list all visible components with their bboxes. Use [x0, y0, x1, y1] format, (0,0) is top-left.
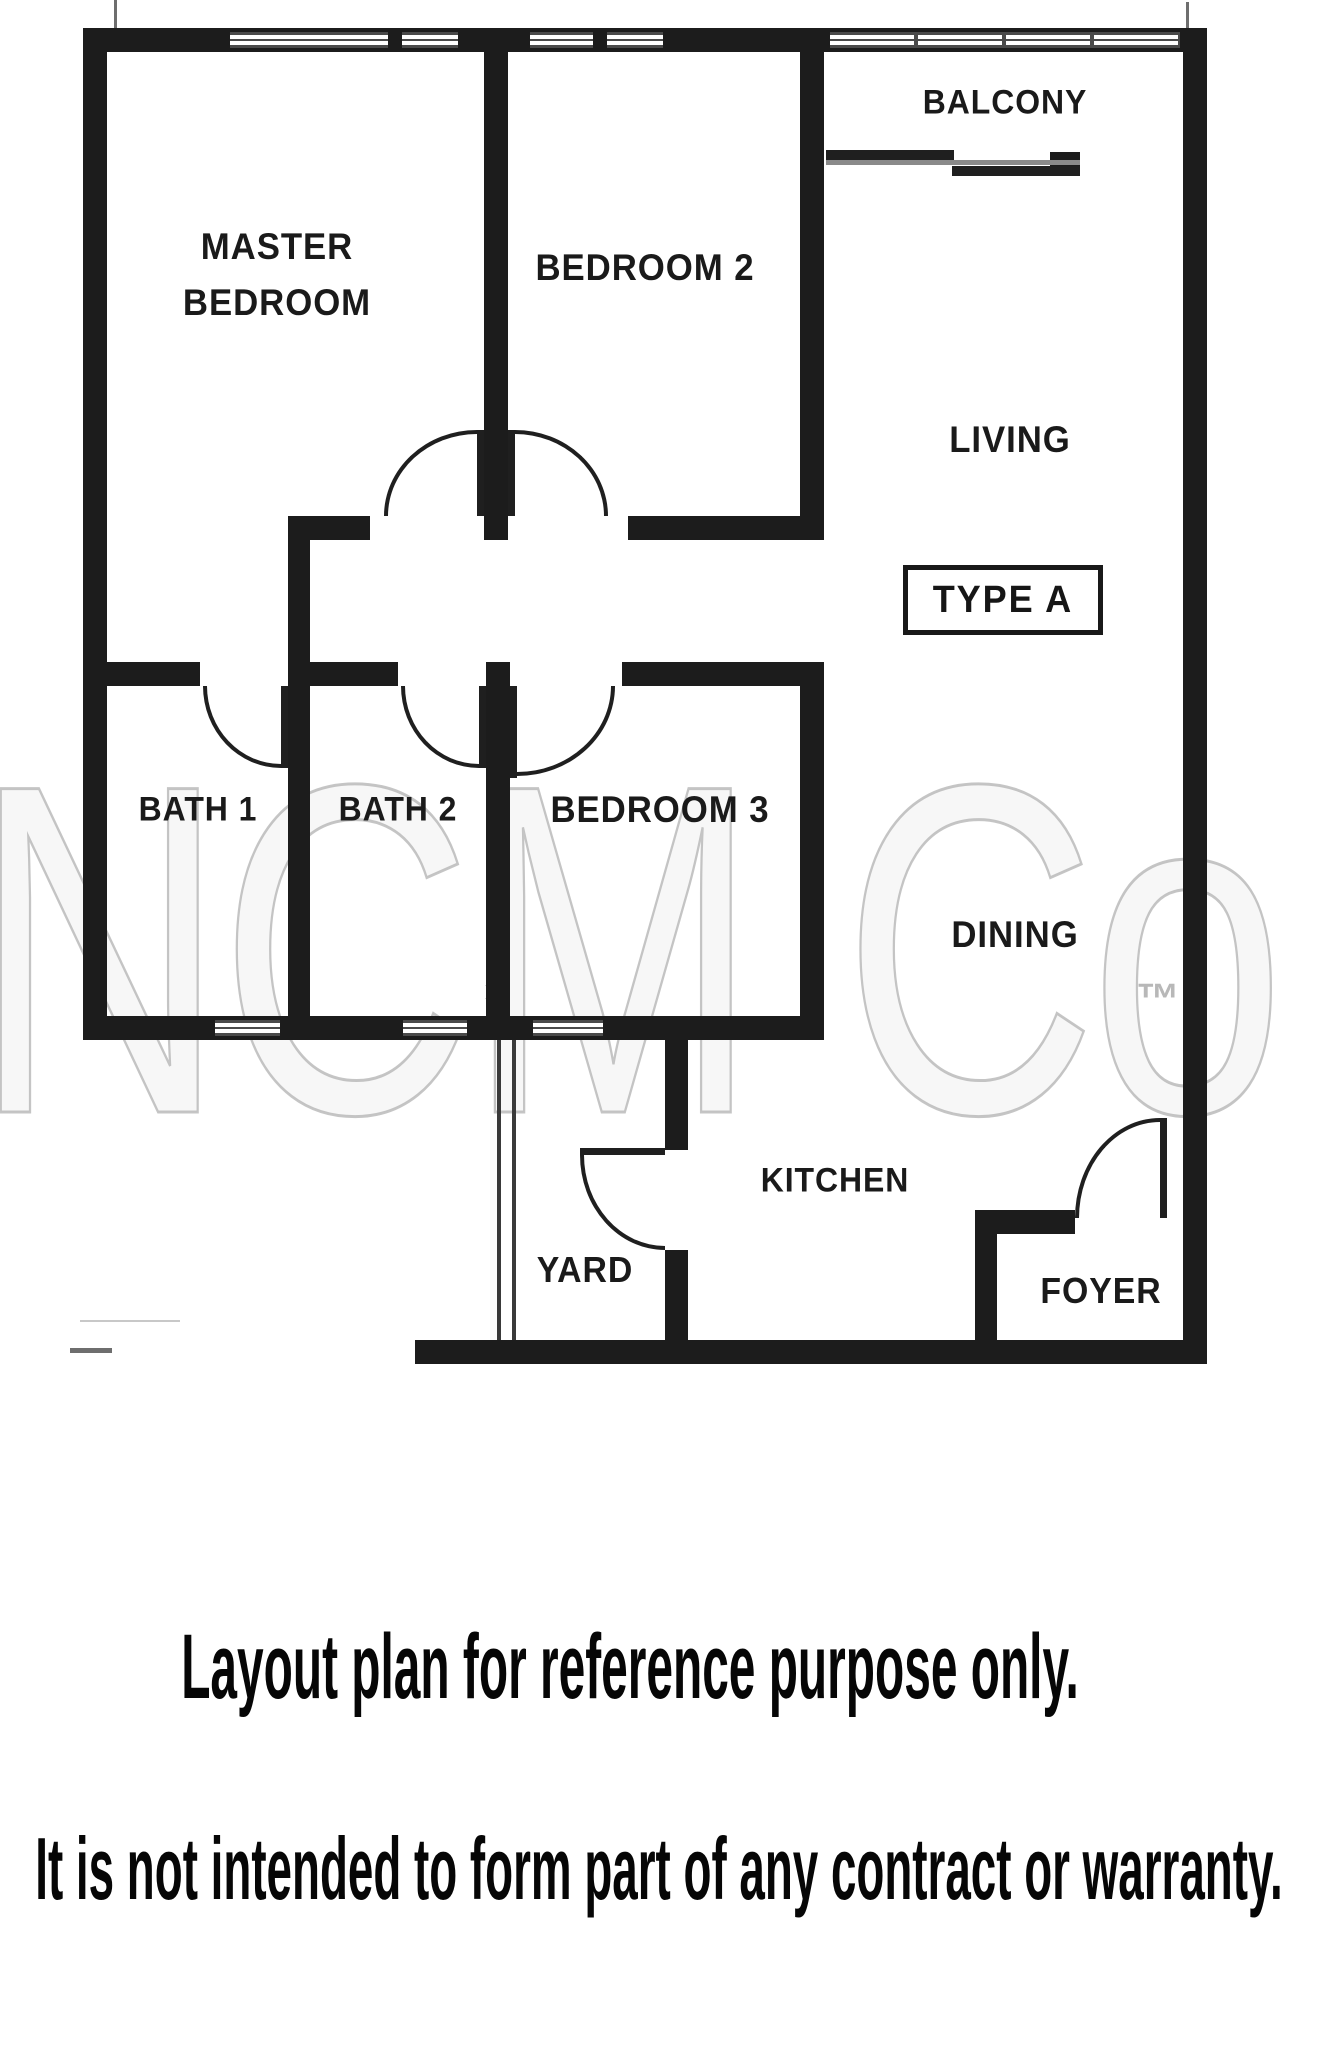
- room-label-master-bedroom-line2: BEDROOM: [183, 282, 371, 324]
- room-label-bedroom2: BEDROOM 2: [535, 247, 754, 289]
- wall-exterior-bottom: [415, 1340, 1207, 1364]
- room-label-bath1: BATH 1: [139, 791, 258, 830]
- room-label-foyer: FOYER: [1040, 1270, 1161, 1312]
- unit-type-box: TYPE A: [903, 565, 1103, 635]
- watermark-brand-text: NCM Co: [0, 715, 1278, 1185]
- wall-bath2-top: [310, 662, 398, 686]
- wall-bedroom2-living-divider: [800, 52, 824, 540]
- window-bedroom2-2: [607, 32, 663, 48]
- door-leaf-main-entrance: [1160, 1118, 1167, 1218]
- wall-hallway-stub: [288, 516, 370, 540]
- room-label-living: LIVING: [949, 419, 1071, 461]
- door-arc-master-bedroom: [384, 430, 477, 516]
- door-arc-bedroom2: [515, 430, 608, 516]
- wall-bath2-bedroom3-divider: [486, 662, 510, 1016]
- sliding-door-panel-2: [952, 166, 1080, 176]
- window-master-bedroom-1: [230, 32, 388, 48]
- door-leaf-master-bedroom: [477, 430, 484, 516]
- wall-exterior-right: [1183, 28, 1207, 1364]
- wall-bath1-top: [107, 662, 200, 686]
- wall-yard-kitchen-upper: [665, 1040, 688, 1150]
- unit-type-label: TYPE A: [933, 579, 1073, 622]
- room-label-kitchen: KITCHEN: [761, 1162, 910, 1201]
- trademark-symbol: ™: [1136, 975, 1180, 1025]
- disclaimer-line-1: Layout plan for reference purpose only.: [181, 1615, 1079, 1720]
- room-label-yard: YARD: [537, 1249, 634, 1291]
- floor-plan-page: NCM Co ™ ✶: [0, 0, 1321, 2048]
- yard-fence-line-outer: [497, 1040, 501, 1340]
- door-leaf-bath1: [281, 686, 288, 768]
- window-balcony: [830, 32, 1180, 48]
- window-master-bedroom-2: [402, 32, 458, 48]
- dimension-line-bottom-left: [80, 1320, 180, 1322]
- sliding-door-panel-1: [826, 150, 954, 160]
- wall-master-bedroom2-divider: [484, 52, 508, 540]
- room-label-master-bedroom-line1: MASTER: [201, 226, 354, 268]
- window-bath2: [403, 1020, 467, 1036]
- room-label-bath2: BATH 2: [339, 791, 458, 830]
- window-bedroom3: [533, 1020, 603, 1036]
- dimension-tick-bottom-left: [70, 1348, 112, 1353]
- wall-yard-kitchen-lower: [665, 1250, 688, 1340]
- window-bath1: [215, 1020, 280, 1036]
- wall-bedroom3-top: [622, 662, 800, 686]
- room-label-dining: DINING: [951, 914, 1078, 956]
- sliding-door-rail: [826, 160, 1080, 165]
- disclaimer-line-2: It is not intended to form part of any c…: [35, 1818, 1282, 1920]
- door-leaf-bedroom3: [510, 686, 517, 778]
- door-leaf-bedroom2: [508, 430, 515, 516]
- door-arc-yard-kitchen: [580, 1155, 665, 1250]
- door-leaf-bath2: [479, 686, 486, 768]
- room-label-bedroom3: BEDROOM 3: [550, 789, 769, 831]
- yard-fence-line-inner: [512, 1040, 516, 1340]
- window-bedroom2-1: [530, 32, 593, 48]
- wall-hallway-right: [628, 516, 800, 540]
- wall-central-bath-divider: [288, 516, 310, 1016]
- dimension-tick-top-left: [114, 0, 117, 28]
- wall-foyer-left: [975, 1210, 997, 1340]
- dimension-tick-top-right: [1186, 2, 1189, 28]
- door-leaf-yard-kitchen: [580, 1148, 665, 1155]
- wall-exterior-left: [83, 28, 107, 1040]
- room-label-balcony: BALCONY: [923, 84, 1088, 123]
- wall-bedroom3-dining-divider: [800, 662, 824, 1016]
